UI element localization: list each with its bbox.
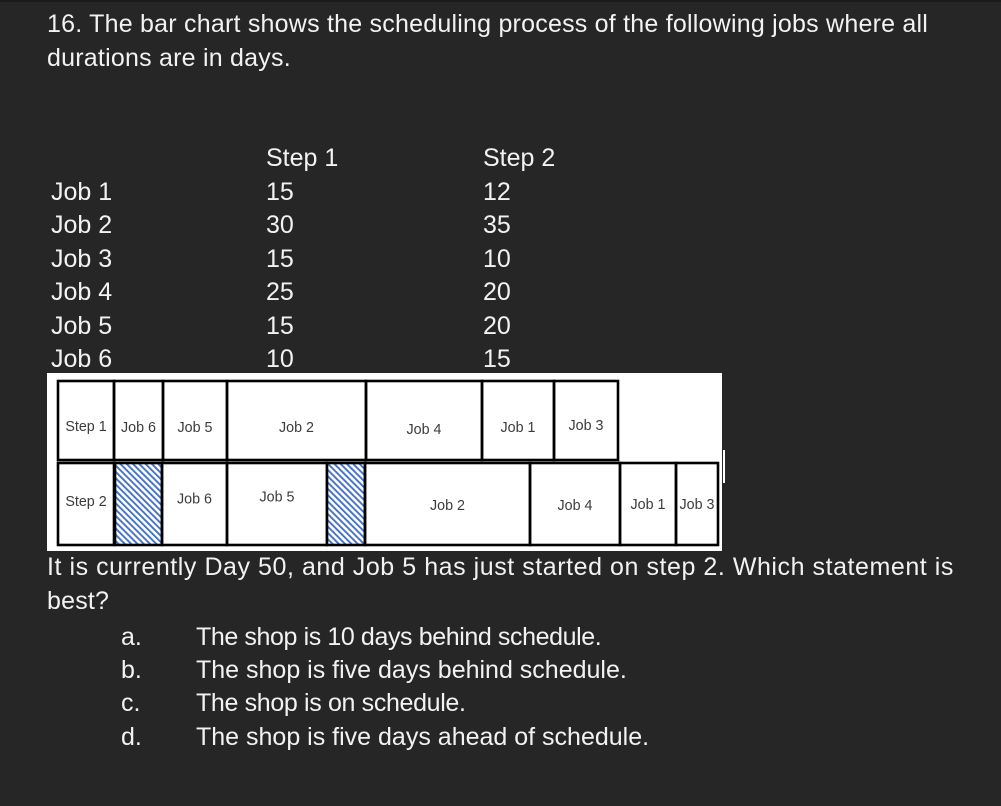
svg-text:Job 5: Job 5	[260, 490, 295, 506]
svg-text:Job 3: Job 3	[569, 418, 604, 434]
svg-text:Job 4: Job 4	[407, 422, 442, 438]
svg-text:Step 1: Step 1	[65, 419, 106, 435]
svg-text:Job 6: Job 6	[121, 420, 156, 436]
svg-text:Job 1: Job 1	[631, 497, 666, 513]
svg-text:Job 1: Job 1	[501, 420, 536, 436]
svg-text:Step 2: Step 2	[65, 494, 106, 510]
svg-text:Job 5: Job 5	[178, 420, 213, 436]
svg-text:Job 2: Job 2	[430, 498, 465, 514]
svg-text:Job 6: Job 6	[177, 492, 212, 508]
svg-text:Job 2: Job 2	[279, 420, 314, 436]
svg-text:Job 3: Job 3	[680, 497, 715, 513]
svg-text:Job 4: Job 4	[558, 498, 593, 514]
